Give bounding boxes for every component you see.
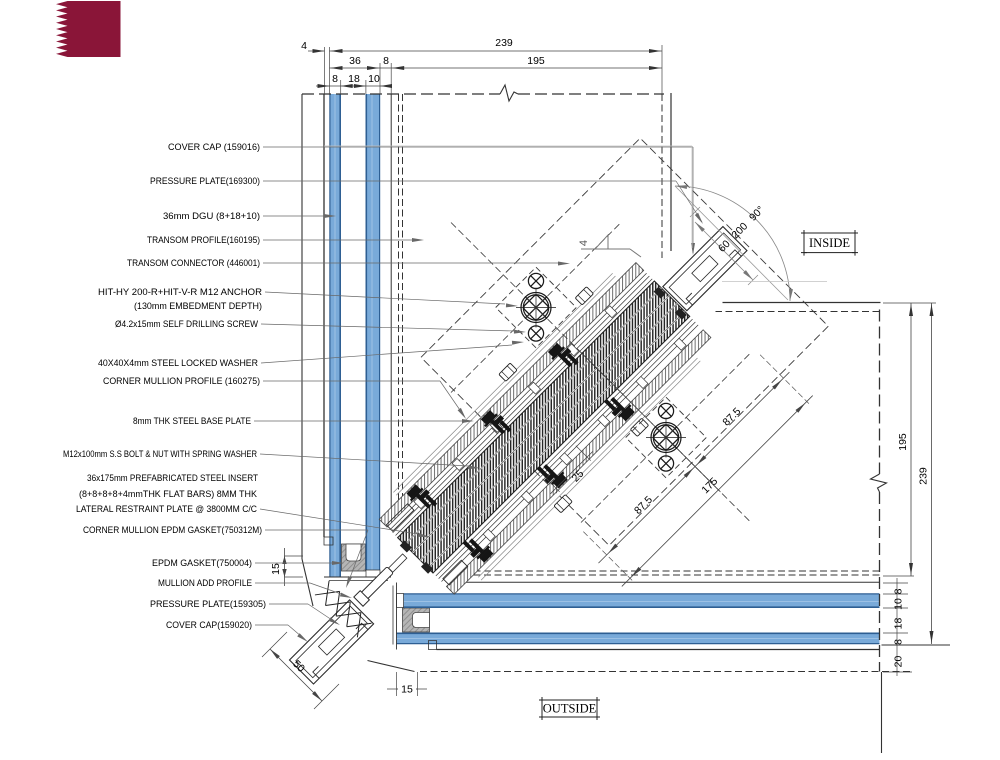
svg-text:15: 15 [270,563,282,575]
svg-text:239: 239 [495,37,513,49]
svg-text:M12x100mm S.S BOLT & NUT WITH: M12x100mm S.S BOLT & NUT WITH SPRING WAS… [63,449,257,460]
svg-text:TRANSOM CONNECTOR (446001): TRANSOM CONNECTOR (446001) [127,258,260,269]
svg-text:EPDM GASKET(750004): EPDM GASKET(750004) [152,558,252,569]
svg-text:18: 18 [893,618,905,630]
svg-text:COVER CAP(159020): COVER CAP(159020) [166,620,252,631]
svg-text:8: 8 [893,639,905,645]
svg-text:LATERAL RESTRAINT PLATE @ 3800: LATERAL RESTRAINT PLATE @ 3800MM C/C [76,504,257,515]
svg-text:8: 8 [383,55,389,67]
svg-text:239: 239 [918,467,930,485]
svg-text:TRANSOM PROFILE(160195): TRANSOM PROFILE(160195) [147,235,260,246]
svg-text:8mm THK STEEL BASE PLATE: 8mm THK STEEL BASE PLATE [133,416,251,427]
svg-text:OUTSIDE: OUTSIDE [543,702,597,716]
svg-text:20: 20 [893,656,905,668]
svg-text:PRESSURE PLATE(169300): PRESSURE PLATE(169300) [150,176,260,187]
svg-text:8: 8 [332,73,338,85]
svg-text:40X40X4mm STEEL LOCKED WASHER: 40X40X4mm STEEL LOCKED WASHER [98,358,258,369]
svg-text:4: 4 [578,240,590,246]
svg-text:10: 10 [893,598,905,610]
svg-text:10: 10 [368,73,380,85]
svg-text:8: 8 [893,588,905,594]
svg-text:(8+8+8+8+4mmTHK FLAT BARS) 8MM: (8+8+8+8+4mmTHK FLAT BARS) 8MM THK [79,489,258,500]
svg-text:Ø4.2x15mm SELF DRILLING SCREW: Ø4.2x15mm SELF DRILLING SCREW [115,319,258,330]
svg-text:15: 15 [401,684,413,696]
svg-text:4: 4 [301,40,307,52]
svg-text:36: 36 [349,55,361,67]
svg-text:36mm DGU (8+18+10): 36mm DGU (8+18+10) [163,211,260,222]
svg-text:CORNER MULLION EPDM GASKET(750: CORNER MULLION EPDM GASKET(750312M) [83,525,262,536]
svg-text:MULLION ADD PROFILE: MULLION ADD PROFILE [158,578,252,589]
svg-text:COVER CAP (159016): COVER CAP (159016) [168,142,260,153]
svg-text:HIT-HY 200-R+HIT-V-R M12 ANCHO: HIT-HY 200-R+HIT-V-R M12 ANCHOR [98,287,262,298]
svg-text:PRESSURE PLATE(159305): PRESSURE PLATE(159305) [150,599,266,610]
svg-text:18: 18 [348,73,360,85]
svg-text:CORNER MULLION PROFILE (160275: CORNER MULLION PROFILE (160275) [103,376,260,387]
svg-text:195: 195 [897,433,909,451]
svg-text:INSIDE: INSIDE [809,236,850,250]
svg-text:36x175mm PREFABRICATED STEEL I: 36x175mm PREFABRICATED STEEL INSERT [87,473,258,484]
svg-text:195: 195 [527,55,545,67]
svg-text:(130mm EMBEDMENT DEPTH): (130mm EMBEDMENT DEPTH) [134,301,262,312]
